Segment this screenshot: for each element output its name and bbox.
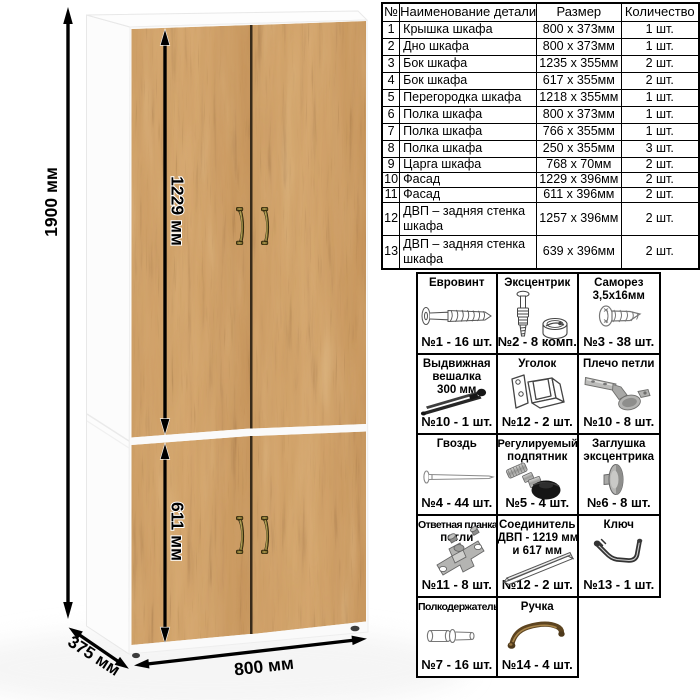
svg-text:1900 мм: 1900 мм (41, 167, 61, 237)
svg-text:611 мм: 611 мм (168, 502, 188, 561)
svg-text:1229 мм: 1229 мм (168, 176, 188, 246)
